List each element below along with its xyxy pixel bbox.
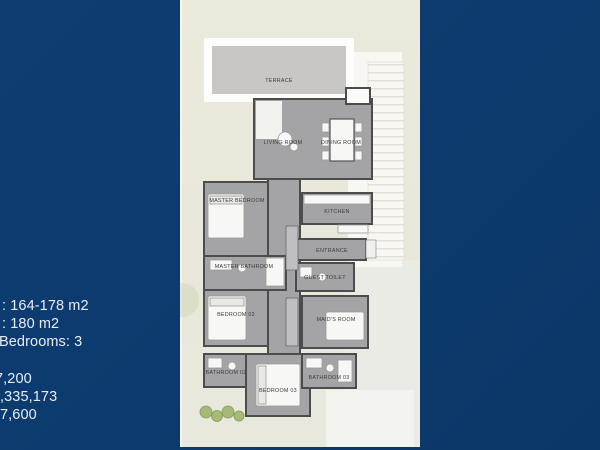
bedrooms-text: Bedrooms: 3 [0,333,89,351]
floor-plan-image: TERRACE LIVING ROOM DINING ROOM MASTER B… [180,0,420,447]
chair [322,151,329,160]
sink [208,358,222,368]
entry-step [366,240,376,258]
price-line-1: 7,200 [0,370,89,388]
label-master-bedroom: MASTER BEDROOM [209,198,265,204]
property-info-panel: : 164-178 m2 : 180 m2 Bedrooms: 3 7,200 … [2,297,89,424]
label-bathroom-02: BATHROOM 02 [206,370,247,376]
pergola-slats [368,62,404,260]
kitchen-appliances [338,225,368,233]
chair [322,123,329,132]
bush-icon [222,406,234,418]
label-dining-room: DINING ROOM [321,140,361,146]
chair [355,123,362,132]
bua-area-text: : 180 m2 [2,315,89,333]
closet [286,298,298,346]
label-bedroom-03: BEDROOM 03 [259,388,297,394]
area-range-text: : 164-178 m2 [2,297,89,315]
bush-icon [234,411,244,421]
terrace [212,46,346,94]
toilet-icon [228,362,236,370]
label-kitchen: KITCHEN [324,209,349,215]
price-line-3: 7,600 [0,406,89,424]
label-master-bathroom: MASTER BATHROOM [215,264,274,270]
label-terrace: TERRACE [265,78,293,84]
pillow [210,298,244,306]
terrace-door-area [256,101,282,139]
bush-icon [200,406,212,418]
balcony-box [346,88,370,104]
label-bathroom-03: BATHROOM 03 [309,375,350,381]
label-bedroom-02: BEDROOM 02 [217,312,255,318]
label-living-room: LIVING ROOM [264,140,303,146]
price-line-2: ,335,173 [0,388,89,406]
floor-plan-svg: TERRACE LIVING ROOM DINING ROOM MASTER B… [180,0,420,447]
toilet-icon [326,364,334,372]
walkway [326,390,414,447]
closet [286,226,298,270]
kitchen-counter [304,195,370,204]
label-maids-room: MAID'S ROOM [316,317,355,323]
label-guest-toilet: GUEST TOILET [304,275,346,281]
sink [306,358,322,368]
tree-icon [180,283,199,317]
shower [266,258,284,286]
pillow [258,366,266,404]
chair [355,151,362,160]
label-entrance: ENTRANCE [316,248,348,254]
bush-icon [212,411,223,422]
